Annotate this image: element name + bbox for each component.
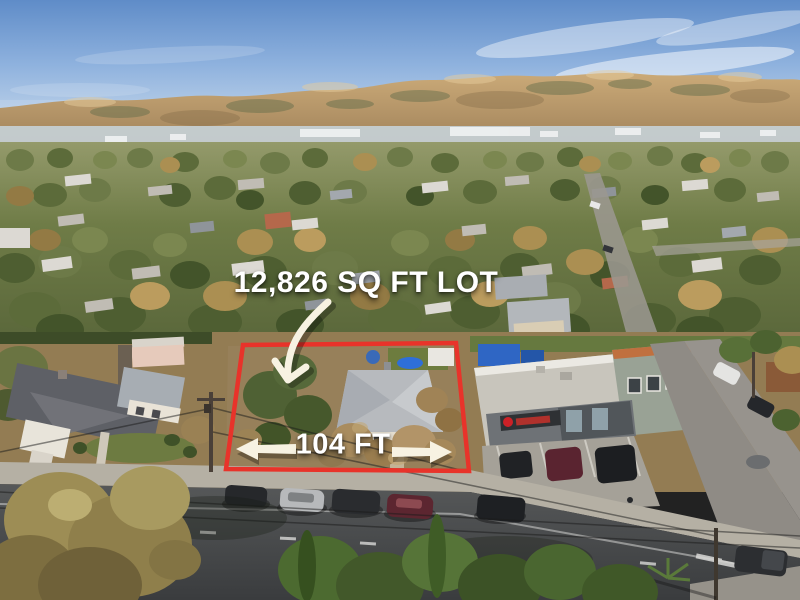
lot-width-label: 104 FT: [296, 429, 391, 462]
lot-size-label: 12,826 SQ FT LOT: [234, 266, 499, 300]
backyard-pool: [397, 357, 423, 369]
photo-scene: [0, 0, 800, 600]
aerial-property-photo: 12,826 SQ FT LOT 104 FT: [0, 0, 800, 600]
backyard-shed: [428, 348, 454, 366]
